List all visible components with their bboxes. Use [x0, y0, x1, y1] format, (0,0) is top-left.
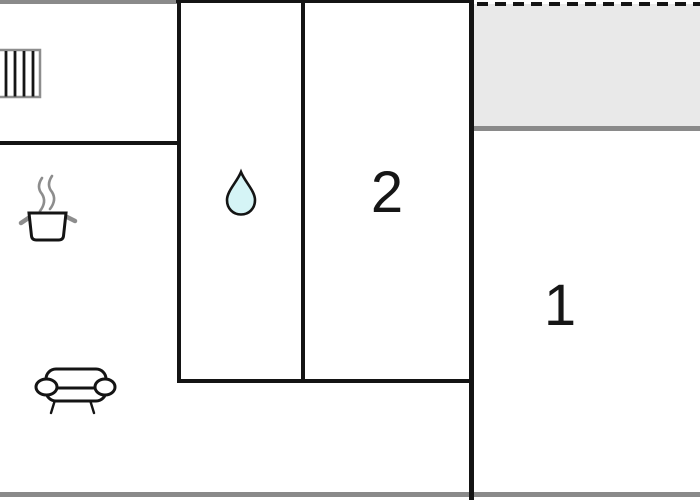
- wall-terrace-bottom: [469, 126, 700, 131]
- water-drop-shape: [227, 172, 255, 215]
- radiator-icon: [0, 48, 44, 100]
- pot-body: [29, 213, 66, 240]
- steam-lines: [39, 176, 54, 211]
- wall-outer-top-left: [0, 0, 178, 4]
- sofa-icon: [32, 364, 120, 418]
- cooking-pot-icon: [18, 170, 80, 245]
- wall-vertical-middle: [301, 0, 305, 383]
- wall-outer-bottom: [0, 492, 700, 497]
- wall-top-middle: [176, 0, 474, 3]
- water-drop-icon: [224, 168, 260, 220]
- room-label-1: 1: [520, 274, 600, 338]
- room-label-2: 2: [347, 161, 427, 225]
- wall-vertical-right: [469, 0, 474, 500]
- terrace-area: [474, 4, 700, 126]
- wall-vertical-left: [177, 0, 181, 383]
- terrace-dashed-boundary: [477, 2, 700, 6]
- sofa-armrest-left: [36, 379, 57, 395]
- sofa-armrest-right: [95, 379, 115, 395]
- wall-middle-horizontal: [177, 379, 474, 383]
- wall-kitchen-horizontal: [0, 141, 181, 145]
- floor-plan: 2 1: [0, 0, 700, 500]
